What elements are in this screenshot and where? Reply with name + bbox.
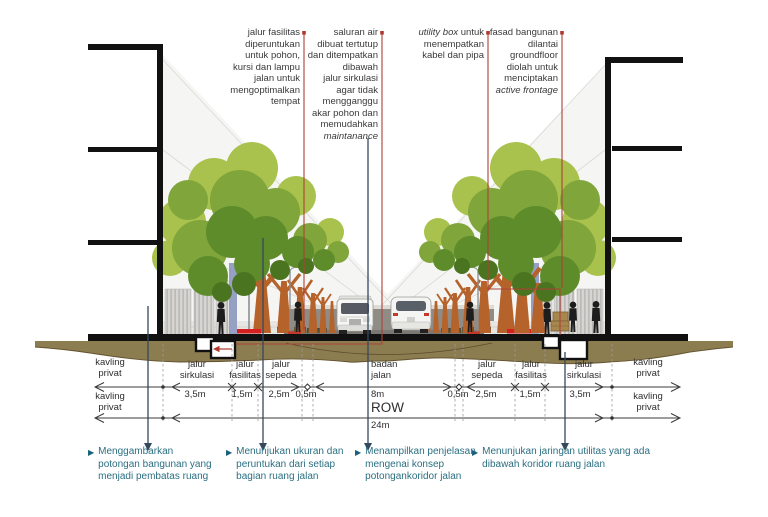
label-jalur-sirkulasi-right: jalur sirkulasi	[554, 360, 614, 381]
building-right	[605, 57, 683, 336]
legend-item-ukuran-peruntukan: ▶ Menunjukan ukuran dan peruntukan dari …	[226, 446, 366, 484]
label-kavling-privat-left-2: kavling privat	[80, 392, 140, 413]
label-kavling-privat-left-1: kavling privat	[80, 358, 140, 379]
legend-item-jaringan-utilitas: ▶ Menunjukan jaringan utilitas yang ada …	[472, 446, 722, 471]
arrow-bullet-icon: ▶	[88, 446, 94, 459]
label-width-2-5m-right: 2,5m	[466, 390, 506, 401]
annotation-fasad-bangunan: fasad bangunan dilantai groundfloor diol…	[468, 27, 558, 96]
arrow-bullet-icon: ▶	[226, 446, 232, 459]
building-left	[88, 44, 163, 336]
ground-slab	[88, 334, 688, 341]
label-jalur-sirkulasi-left: jalur sirkulasi	[167, 360, 227, 381]
label-jalur-sepeda-left: jalur sepeda	[256, 360, 306, 381]
label-width-8m: 8m	[371, 390, 401, 401]
label-kavling-privat-right-1: kavling privat	[618, 358, 678, 379]
label-width-3-5m-right: 3,5m	[560, 390, 600, 401]
legend-item-potongan-bangunan: ▶ Menggambarkan potongan bangunan yang m…	[88, 446, 233, 484]
label-width-0-5m-left: 0,5m	[291, 390, 321, 401]
label-jalur-sepeda-right: jalur sepeda	[462, 360, 512, 381]
street-section-diagram: jalur fasilitas diperuntukan untuk pohon…	[0, 0, 768, 517]
label-jalur-fasilitas-right: jalur fasilitas	[506, 360, 556, 381]
annotation-saluran-air: saluran air dibuat tertutup dan ditempat…	[288, 27, 378, 142]
arrow-bullet-icon: ▶	[355, 446, 361, 459]
legend-text: Menggambarkan potongan bangunan yang men…	[98, 446, 211, 484]
label-badan-jalan: badan jalan	[371, 360, 411, 381]
legend-text: Menampilkan penjelasan mengenai konsep p…	[365, 446, 476, 484]
label-width-3-5m-left: 3,5m	[175, 390, 215, 401]
section-drawing	[0, 0, 768, 517]
arrow-bullet-icon: ▶	[472, 446, 478, 459]
legend-text: Menunjukan jaringan utilitas yang ada di…	[482, 446, 650, 471]
label-width-24m: 24m	[371, 421, 401, 432]
label-kavling-privat-right-2: kavling privat	[618, 392, 678, 413]
car-rear-view	[391, 297, 431, 333]
label-width-1-5m-left: 1,5m	[222, 390, 262, 401]
label-row: ROW	[371, 400, 404, 415]
legend-item-penjelasan-konsep: ▶ Menampilkan penjelasan mengenai konsep…	[355, 446, 485, 484]
label-width-1-5m-right: 1,5m	[510, 390, 550, 401]
legend-text: Menunjukan ukuran dan peruntukan dari se…	[236, 446, 343, 484]
